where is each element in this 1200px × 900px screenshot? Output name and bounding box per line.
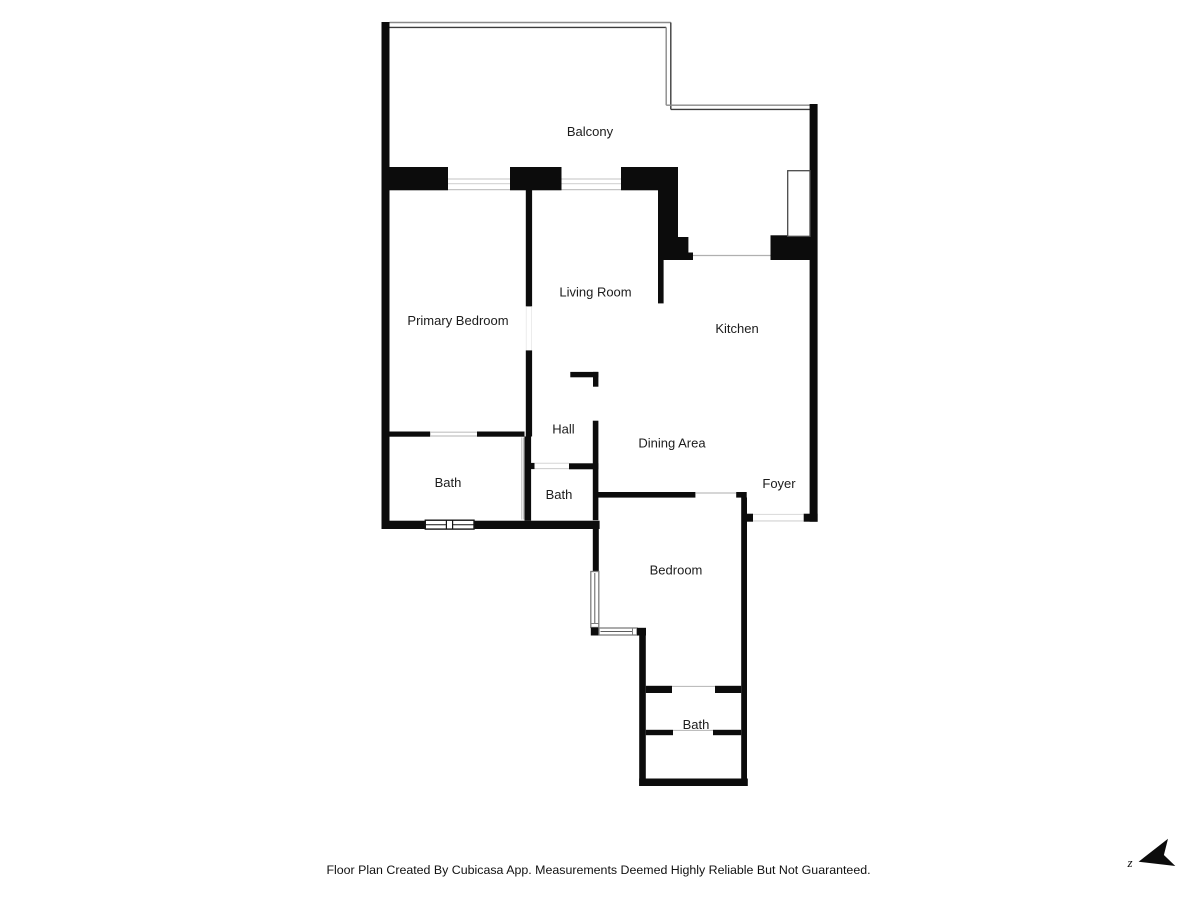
svg-text:Bath: Bath bbox=[435, 475, 462, 490]
svg-text:Bath: Bath bbox=[546, 487, 573, 502]
svg-text:Dining Area: Dining Area bbox=[638, 436, 706, 451]
svg-text:Bedroom: Bedroom bbox=[650, 563, 703, 578]
svg-text:Kitchen: Kitchen bbox=[715, 321, 758, 336]
svg-text:Foyer: Foyer bbox=[762, 476, 796, 491]
svg-text:z: z bbox=[1126, 855, 1132, 870]
svg-text:Floor Plan Created By Cubicasa: Floor Plan Created By Cubicasa App. Meas… bbox=[326, 863, 870, 877]
svg-text:Bath: Bath bbox=[683, 717, 710, 732]
svg-text:Balcony: Balcony bbox=[567, 124, 614, 139]
svg-text:Living Room: Living Room bbox=[559, 285, 631, 300]
svg-text:Hall: Hall bbox=[552, 422, 575, 437]
svg-text:Primary Bedroom: Primary Bedroom bbox=[407, 313, 508, 328]
